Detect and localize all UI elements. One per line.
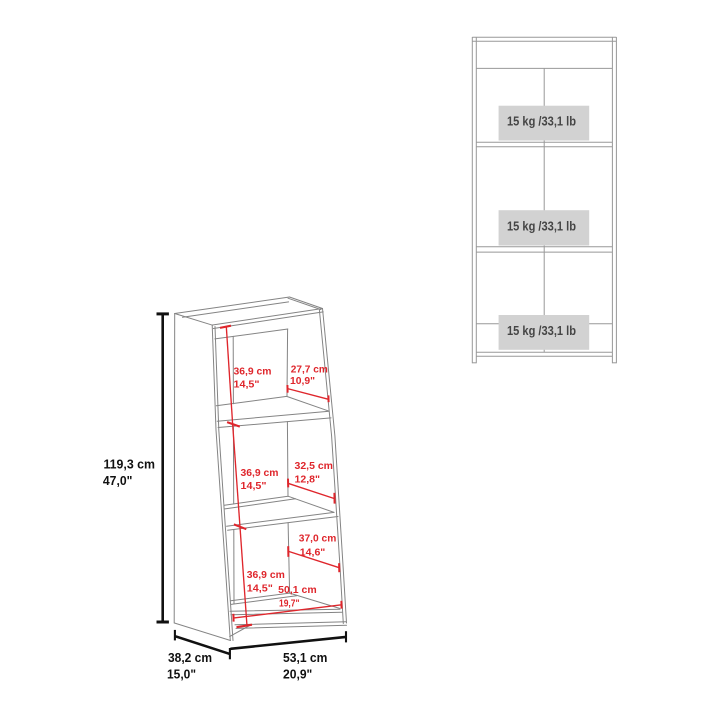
svg-text:15 kg /33,1 lb: 15 kg /33,1 lb [507,114,576,129]
svg-text:36,9 cm: 36,9 cm [234,367,272,378]
svg-text:47,0": 47,0" [103,473,132,488]
svg-text:14,5": 14,5" [241,481,267,492]
svg-text:32,5 cm: 32,5 cm [295,461,334,472]
svg-text:10,9": 10,9" [290,376,315,387]
svg-text:36,9 cm: 36,9 cm [247,570,285,581]
svg-text:14,5": 14,5" [234,379,260,390]
svg-text:27,7 cm: 27,7 cm [291,365,328,376]
svg-text:12,8": 12,8" [295,474,321,485]
svg-text:119,3 cm: 119,3 cm [104,456,156,471]
svg-text:14,6": 14,6" [300,547,326,558]
svg-text:37,0 cm: 37,0 cm [299,534,337,545]
svg-text:15 kg /33,1 lb: 15 kg /33,1 lb [507,323,576,338]
svg-text:19,7": 19,7" [279,599,300,610]
svg-text:14,5": 14,5" [247,584,273,595]
svg-text:53,1 cm: 53,1 cm [283,650,327,665]
svg-text:20,9": 20,9" [283,667,312,682]
svg-text:15 kg /33,1 lb: 15 kg /33,1 lb [507,219,576,234]
svg-text:36,9 cm: 36,9 cm [241,468,279,479]
svg-text:15,0": 15,0" [167,666,196,681]
svg-text:50,1 cm: 50,1 cm [278,585,317,596]
svg-text:38,2 cm: 38,2 cm [168,650,212,665]
